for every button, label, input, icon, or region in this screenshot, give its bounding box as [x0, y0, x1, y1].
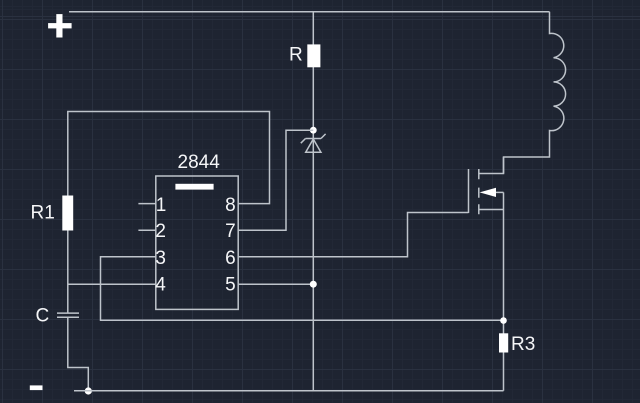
- svg-text:5: 5: [225, 275, 236, 296]
- svg-text:3: 3: [155, 248, 166, 269]
- svg-text:1: 1: [156, 195, 167, 216]
- svg-text:R1: R1: [31, 203, 55, 224]
- svg-text:R: R: [289, 45, 303, 66]
- svg-text:7: 7: [225, 221, 236, 242]
- svg-text:2844: 2844: [178, 152, 221, 173]
- svg-text:2: 2: [155, 221, 166, 242]
- svg-text:C: C: [36, 306, 50, 327]
- svg-text:6: 6: [225, 248, 236, 269]
- svg-text:4: 4: [155, 275, 166, 296]
- svg-text:8: 8: [225, 195, 236, 216]
- svg-text:R3: R3: [511, 334, 535, 355]
